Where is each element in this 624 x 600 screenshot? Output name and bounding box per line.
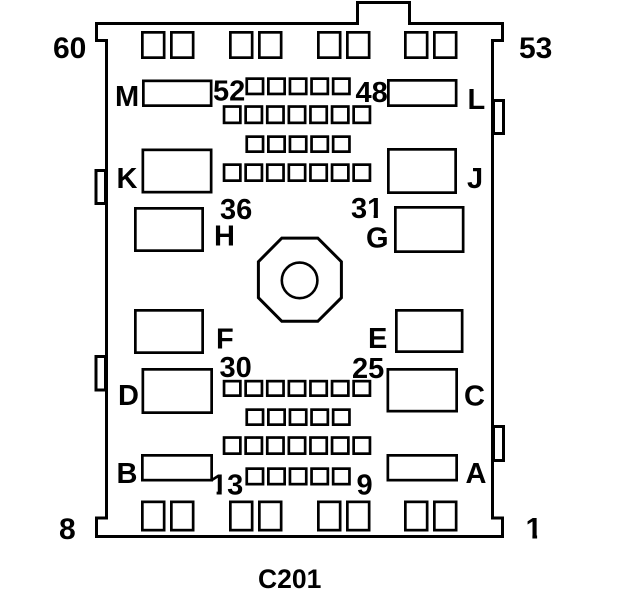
svg-text:K: K: [117, 163, 138, 195]
svg-text:F: F: [216, 324, 234, 356]
svg-text:B: B: [117, 458, 138, 490]
svg-text:D: D: [118, 380, 139, 412]
svg-text:60: 60: [53, 32, 86, 65]
svg-text:E: E: [368, 323, 387, 355]
svg-text:J: J: [467, 163, 483, 195]
svg-text:30: 30: [220, 352, 252, 384]
svg-text:52: 52: [213, 76, 245, 108]
svg-text:A: A: [466, 458, 487, 490]
svg-text:31: 31: [351, 193, 383, 225]
svg-text:13: 13: [211, 470, 243, 502]
svg-text:8: 8: [59, 513, 76, 546]
svg-text:C: C: [464, 381, 485, 413]
svg-text:9: 9: [357, 470, 373, 502]
svg-text:1: 1: [526, 513, 543, 546]
svg-text:48: 48: [356, 77, 388, 109]
svg-text:25: 25: [352, 353, 384, 385]
svg-text:53: 53: [519, 32, 552, 65]
svg-text:C201: C201: [258, 564, 321, 594]
svg-text:L: L: [468, 84, 486, 116]
svg-text:36: 36: [220, 194, 252, 226]
svg-text:G: G: [366, 223, 389, 255]
svg-text:M: M: [115, 81, 139, 113]
